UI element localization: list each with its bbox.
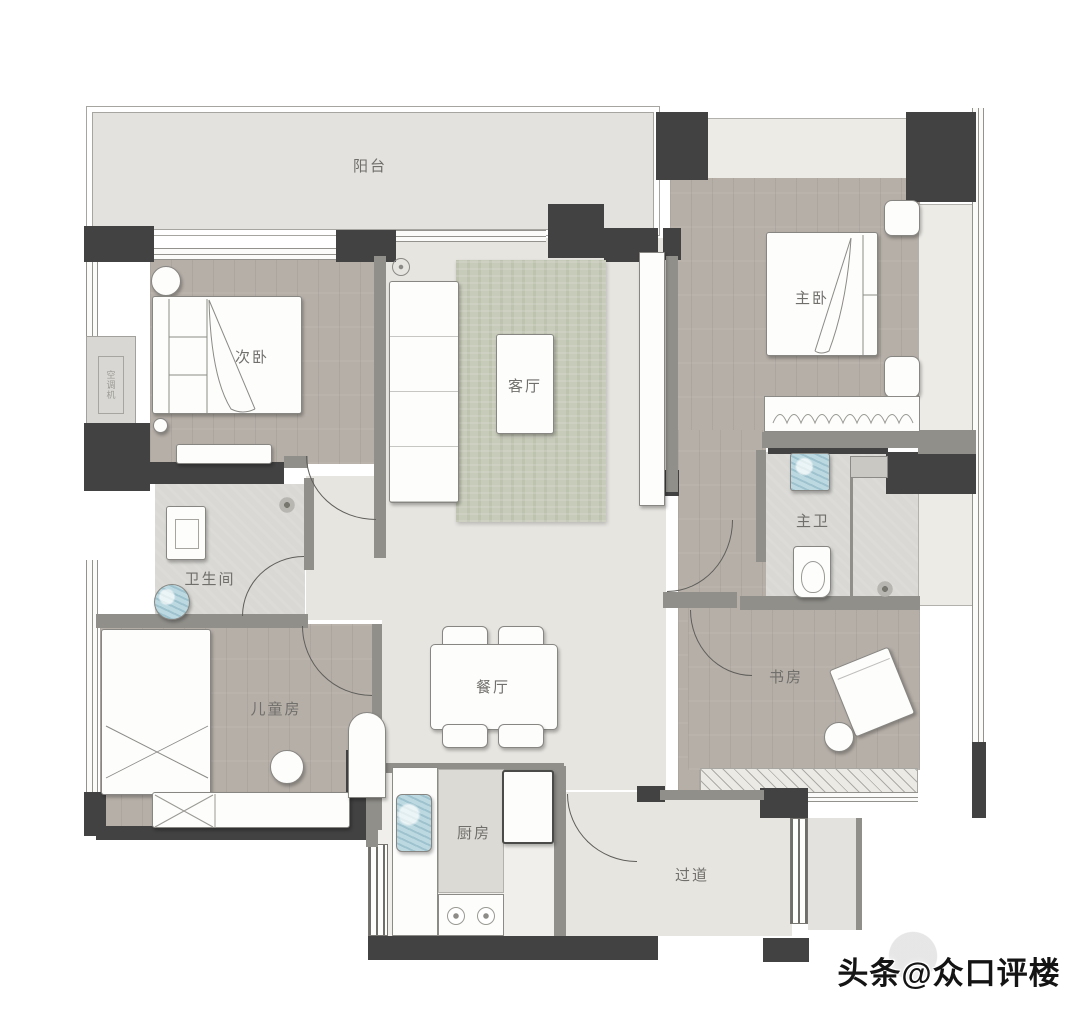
partition xyxy=(666,256,678,492)
stove-burner xyxy=(447,907,465,925)
dining-room-label: 餐厅 xyxy=(448,674,538,698)
master-toilet xyxy=(793,546,831,598)
partition xyxy=(554,766,566,936)
partition xyxy=(850,476,853,600)
master-nightstand-bottom xyxy=(884,356,920,398)
wardrobe-hangers xyxy=(765,397,921,433)
shower-head-icon xyxy=(876,580,894,598)
partition xyxy=(762,432,920,448)
master-bathroom-label: 主卫 xyxy=(768,508,858,532)
watermark: 头条@众口评楼 xyxy=(818,948,1080,993)
stove xyxy=(438,894,504,936)
master-bath-sink xyxy=(790,453,830,491)
study-stool xyxy=(824,722,854,752)
partition xyxy=(756,450,766,562)
stove-burner xyxy=(477,907,495,925)
bed-linen-lines xyxy=(102,630,212,796)
partition xyxy=(304,478,314,570)
bathroom-label: 卫生间 xyxy=(165,566,255,590)
children-bed xyxy=(101,629,211,795)
kitchen-sink xyxy=(396,794,432,852)
master-bedroom-label: 主卧 xyxy=(767,285,857,309)
partition xyxy=(660,790,764,800)
wall xyxy=(656,112,708,180)
wall xyxy=(368,936,658,960)
bedside-lamp xyxy=(151,266,181,296)
secondary-bedroom-top-window xyxy=(154,248,336,260)
partition xyxy=(740,596,920,610)
children-stool xyxy=(270,750,304,784)
children-desk xyxy=(152,792,350,828)
children-room-left-window xyxy=(86,560,98,794)
sofa xyxy=(389,281,459,503)
hallway-label: 过道 xyxy=(647,862,737,886)
partition xyxy=(918,430,976,454)
wall xyxy=(763,938,809,962)
ceiling-light-icon xyxy=(392,258,410,276)
living-balcony-slider xyxy=(396,230,546,242)
wall xyxy=(972,742,986,818)
children-cabinet xyxy=(348,712,386,798)
partition xyxy=(663,592,737,608)
entry-landing-floor xyxy=(808,818,858,930)
kitchen-label: 厨房 xyxy=(429,820,519,844)
master-bath-counter xyxy=(850,456,888,478)
master-bathroom-bay xyxy=(918,492,976,606)
secondary-bedroom-label: 次卧 xyxy=(207,344,297,368)
partition xyxy=(284,456,308,468)
balcony-label: 阳台 xyxy=(325,153,415,177)
living-room-label: 客厅 xyxy=(480,373,570,397)
wall xyxy=(84,226,154,262)
wall xyxy=(148,462,284,484)
vanity-basin xyxy=(175,519,199,549)
wall xyxy=(336,230,396,262)
children-room-label: 儿童房 xyxy=(231,696,321,720)
wall xyxy=(906,112,976,202)
wall xyxy=(84,423,150,491)
entry-landing-edge xyxy=(856,818,862,930)
dining-chair xyxy=(498,724,544,748)
toilet-bowl xyxy=(801,561,825,593)
desk-chair-x xyxy=(153,793,215,829)
dining-chair xyxy=(442,724,488,748)
master-nightstand-top xyxy=(884,200,920,236)
bedside-stool xyxy=(153,418,168,433)
secondary-bedroom-left-window xyxy=(86,260,98,340)
study-label: 书房 xyxy=(741,664,831,688)
kitchen-left-window xyxy=(368,844,388,936)
entry-door-threshold xyxy=(790,818,808,924)
partition xyxy=(96,614,308,628)
secondary-dresser xyxy=(176,444,272,464)
tv-console xyxy=(639,252,665,506)
master-right-bay xyxy=(918,204,976,434)
wall xyxy=(96,826,374,840)
ac-platform-label: 空调机 xyxy=(104,352,118,418)
bathroom-vanity xyxy=(166,506,206,560)
shower-knob-icon xyxy=(278,496,296,514)
master-bay-window xyxy=(706,118,910,180)
master-wardrobe xyxy=(764,396,920,432)
floor-plan: 空调机 xyxy=(0,0,1080,1026)
wall xyxy=(548,204,604,258)
wall xyxy=(760,788,808,818)
wall xyxy=(886,452,976,494)
